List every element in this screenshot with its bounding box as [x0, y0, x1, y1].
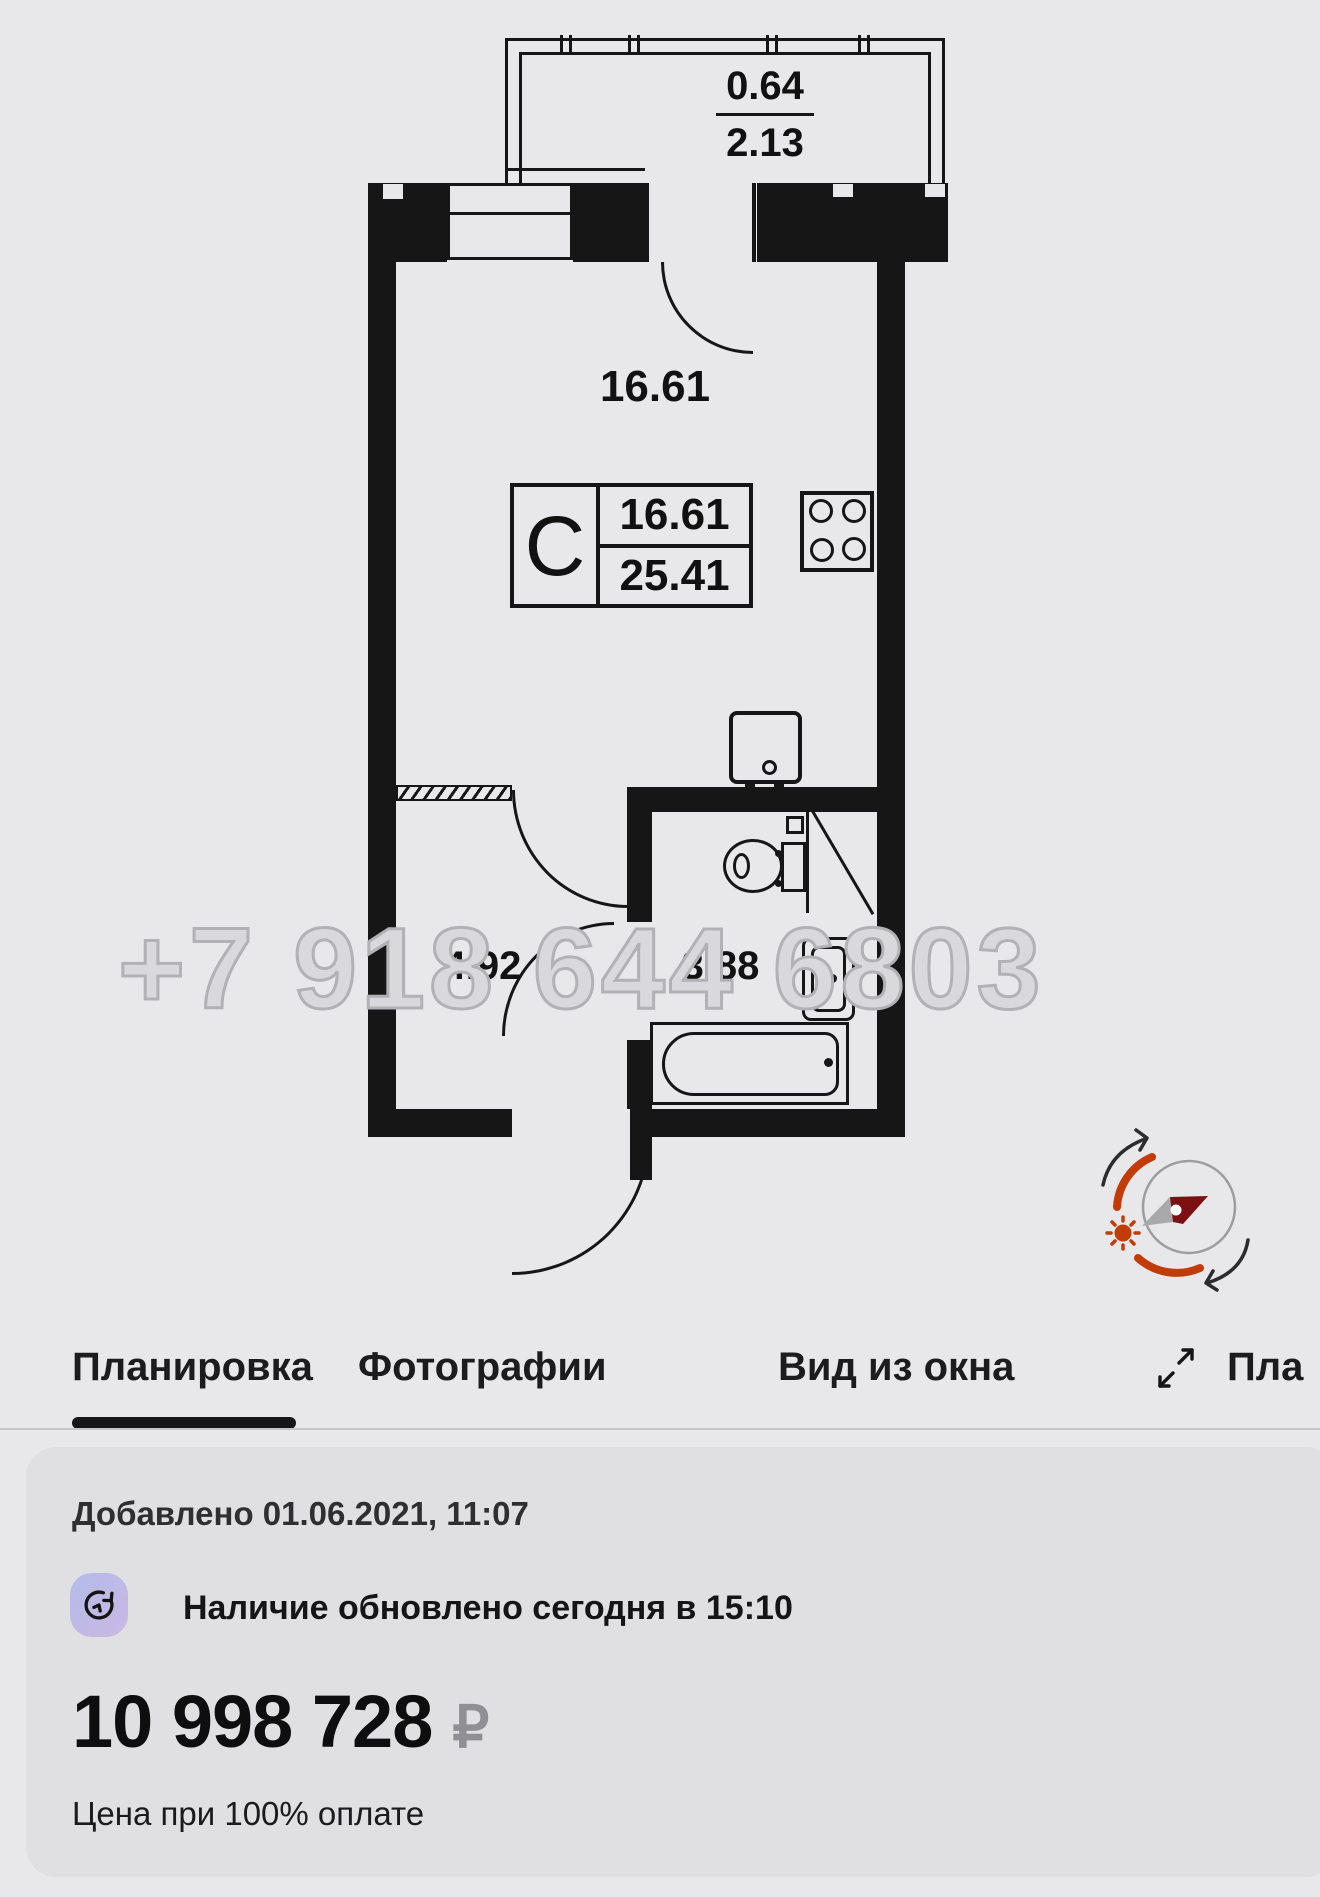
- wall-top-left: [368, 183, 447, 262]
- burner-icon: [842, 537, 866, 561]
- balcony-door-arc: [661, 262, 753, 354]
- compass-arc-bottom: [1138, 1258, 1200, 1273]
- wardrobe-hatch-line: [396, 785, 512, 801]
- watermark-phone: +7 918 644 6803: [118, 903, 1045, 1035]
- washing-machine-icon: [729, 711, 802, 784]
- wall-bottom-right: [630, 1109, 905, 1137]
- balcony-divider: [560, 35, 572, 55]
- balcony-area-label: 0.64 2.13: [690, 64, 840, 166]
- bathtub-drain: [824, 1058, 833, 1067]
- room-area-label: 16.61: [580, 362, 730, 412]
- room-hall-door-arc: [512, 790, 628, 908]
- toilet-bolt: [775, 880, 782, 887]
- compass-arc-top: [1117, 1157, 1152, 1207]
- balcony-door-jamb: [752, 183, 756, 262]
- stove-icon: [800, 491, 874, 572]
- unit-living-area: 16.61: [600, 487, 749, 548]
- availability-text: Наличие обновлено сегодня в 15:10: [183, 1589, 793, 1628]
- tabs-divider: [0, 1428, 1320, 1430]
- availability-badge: [70, 1573, 128, 1637]
- tab-label: Фотографии: [358, 1345, 607, 1389]
- toilet-bowl-detail: [733, 853, 750, 879]
- burner-icon: [809, 499, 833, 523]
- sun-icon: [1107, 1217, 1139, 1249]
- balcony-area-reduced: 0.64: [716, 64, 814, 116]
- tab-label: Планировка: [72, 1345, 313, 1389]
- tab-next-clipped[interactable]: Пла: [1227, 1345, 1303, 1390]
- unit-info-box: C 16.61 25.41: [510, 483, 753, 608]
- unit-total-area: 25.41: [600, 548, 749, 605]
- price-value: 10 998 728: [72, 1679, 432, 1764]
- balcony-divider: [628, 35, 640, 55]
- listing-screen: 0.64 2.13 16.61 4.92 3.88: [0, 0, 1320, 1897]
- window-frame-line: [450, 212, 570, 215]
- balcony-door-jamb: [645, 183, 649, 262]
- balcony-area-full: 2.13: [726, 116, 804, 166]
- listing-info-card: Добавлено 01.06.2021, 11:07 Наличие обно…: [26, 1447, 1320, 1877]
- clock-refresh-icon: [81, 1587, 117, 1623]
- toilet-bolt: [775, 850, 782, 857]
- price-row: 10 998 728 ₽: [72, 1679, 489, 1764]
- wall-notch: [925, 184, 945, 197]
- tab-fotografii[interactable]: Фотографии: [358, 1345, 607, 1390]
- floor-plan[interactable]: 0.64 2.13 16.61 4.92 3.88: [0, 0, 1320, 1330]
- toilet-icon: [723, 839, 783, 893]
- burner-icon: [842, 499, 866, 523]
- washer-foot: [774, 784, 784, 791]
- compass-icon: [1085, 1122, 1260, 1300]
- added-date-text: Добавлено 01.06.2021, 11:07: [72, 1495, 529, 1533]
- tab-label: Вид из окна: [778, 1345, 1014, 1389]
- tab-label: Пла: [1227, 1345, 1303, 1389]
- balcony-floor-line: [508, 168, 645, 171]
- entry-door-arc: [512, 1137, 650, 1275]
- vent-box: [786, 816, 804, 834]
- balcony-divider: [766, 35, 778, 55]
- washer-door-icon: [762, 760, 777, 775]
- wall-notch: [833, 184, 853, 197]
- balcony-divider: [858, 35, 870, 55]
- price-note: Цена при 100% оплате: [72, 1795, 424, 1833]
- wall-notch: [383, 184, 403, 199]
- washer-foot: [745, 784, 755, 791]
- toilet-tank: [781, 842, 806, 892]
- expand-icon[interactable]: [1152, 1342, 1200, 1394]
- ruble-symbol: ₽: [452, 1693, 489, 1761]
- tab-planirovka[interactable]: Планировка: [72, 1345, 313, 1390]
- bathtub-basin: [662, 1032, 839, 1096]
- wall-bathroom-left-lower: [627, 1040, 652, 1109]
- unit-type-letter: C: [514, 487, 600, 604]
- wall-bottom-left: [368, 1109, 512, 1137]
- wall-top-mid: [573, 183, 645, 262]
- tab-vid-iz-okna[interactable]: Вид из окна: [778, 1345, 1014, 1390]
- burner-icon: [810, 538, 834, 562]
- compass-needle: [1142, 1196, 1208, 1226]
- window: [447, 183, 573, 260]
